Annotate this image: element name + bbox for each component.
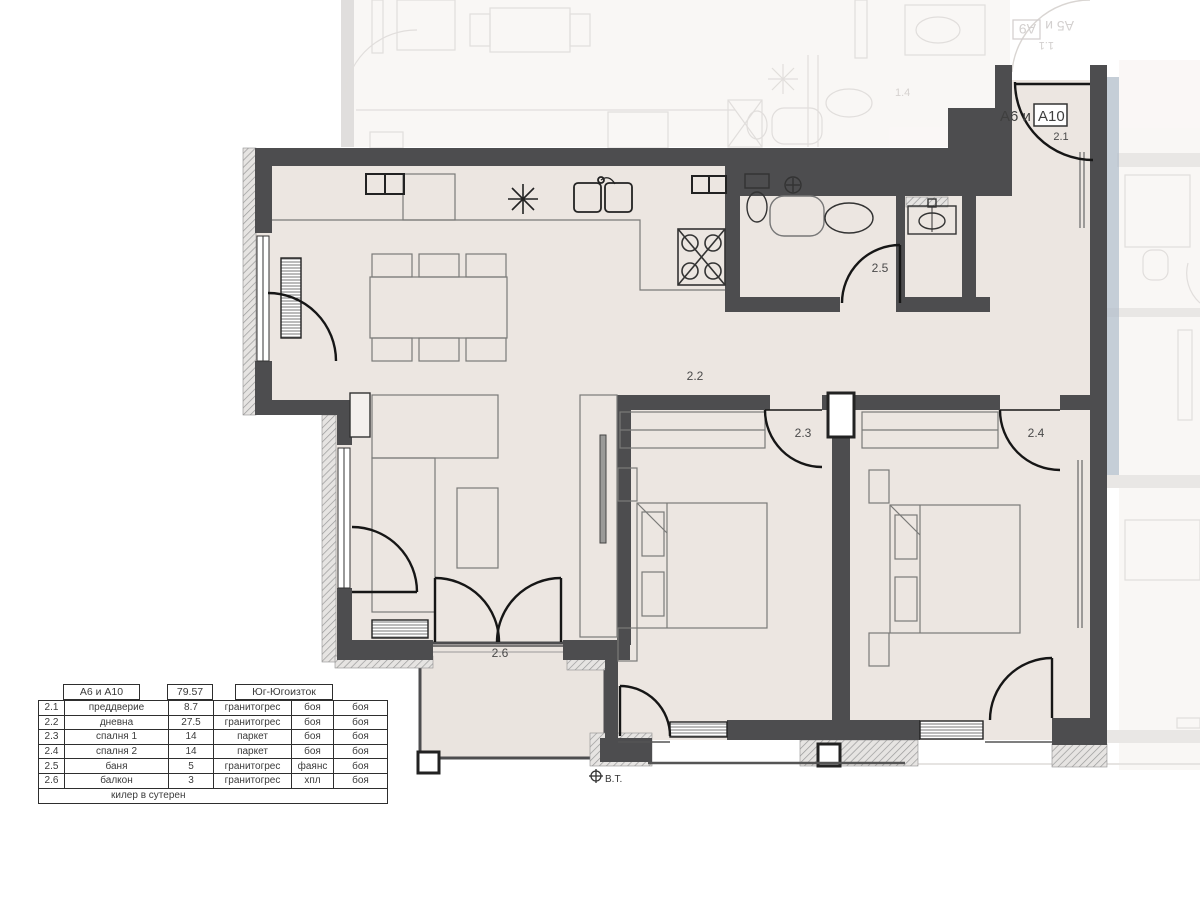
cell-num: 2.4	[39, 745, 65, 759]
survey-point-icon	[589, 769, 603, 783]
spec-header-apartment: А6 и А10	[63, 684, 140, 700]
cell-ceiling: боя	[334, 716, 387, 730]
cell-walls: фаянс	[292, 759, 334, 773]
spec-table-header: А6 и А10 79.57 Юг-Югоизток	[38, 684, 388, 700]
faded-upper-apartment	[341, 0, 1010, 148]
cell-ceiling: боя	[334, 774, 387, 788]
room-label-2-5: 2.5	[872, 261, 889, 275]
room-label-2-4: 2.4	[1028, 426, 1045, 440]
cell-name: спалня 1	[65, 730, 169, 744]
apartment-title-prefix: А6 и	[1000, 108, 1031, 125]
cell-num: 2.5	[39, 759, 65, 773]
cell-floor: гранитогрес	[214, 774, 292, 788]
upper-apartment-label-prefix: А5 и	[1045, 18, 1074, 34]
upper-neighbor-room-label: 1.4	[895, 87, 910, 99]
cell-area: 27.5	[169, 716, 214, 730]
radiator-living-bottom	[372, 620, 428, 638]
cell-area: 14	[169, 730, 214, 744]
cell-floor: паркет	[214, 745, 292, 759]
room-label-2-1: 2.1	[1053, 131, 1068, 143]
room-label-2-6: 2.6	[492, 646, 509, 660]
radiator-bedroom1	[670, 722, 727, 737]
light-symbol-icon	[508, 184, 538, 214]
apartment-title: А6 и А10	[1000, 104, 1067, 126]
room-label-2-3: 2.3	[795, 426, 812, 440]
radiator-bedroom2	[920, 721, 983, 739]
table-row: 2.3 спалня 1 14 паркет боя боя	[39, 730, 387, 745]
survey-point-label: В.Т.	[605, 774, 622, 785]
cell-floor: гранитогрес	[214, 701, 292, 715]
cell-name: преддверие	[65, 701, 169, 715]
upper-apartment-label-boxed: А9	[1019, 21, 1036, 37]
cell-num: 2.3	[39, 730, 65, 744]
cell-ceiling: боя	[334, 701, 387, 715]
cell-area: 5	[169, 759, 214, 773]
plumbing-shaft	[828, 393, 854, 437]
cell-walls: хпл	[292, 774, 334, 788]
cell-floor: гранитогрес	[214, 716, 292, 730]
washbasin-small-icon	[785, 177, 801, 193]
floor-plan-page: А5 и А9 1.1 1.4	[0, 0, 1200, 901]
spec-table-body: 2.1 преддверие 8.7 гранитогрес боя боя 2…	[38, 700, 388, 789]
tv-icon	[600, 435, 606, 543]
cell-num: 2.1	[39, 701, 65, 715]
cell-floor: гранитогрес	[214, 759, 292, 773]
table-row: 2.1 преддверие 8.7 гранитогрес боя боя	[39, 701, 387, 716]
room-label-2-2: 2.2	[687, 369, 704, 383]
room-spec-table: А6 и А10 79.57 Юг-Югоизток 2.1 преддвери…	[38, 684, 388, 804]
cell-ceiling: боя	[334, 759, 387, 773]
table-row: 2.6 балкон 3 гранитогрес хпл боя	[39, 774, 387, 789]
cell-area: 14	[169, 745, 214, 759]
upper-room-label: 1.1	[1039, 39, 1054, 51]
cell-walls: боя	[292, 701, 334, 715]
cell-area: 3	[169, 774, 214, 788]
spec-table-footer: килер в сутерен	[38, 789, 388, 804]
cell-name: дневна	[65, 716, 169, 730]
table-row: 2.4 спалня 2 14 паркет боя боя	[39, 745, 387, 760]
spec-header-exposure: Юг-Югоизток	[235, 684, 333, 700]
cell-ceiling: боя	[334, 745, 387, 759]
cell-name: баня	[65, 759, 169, 773]
cell-num: 2.6	[39, 774, 65, 788]
drain-box	[418, 752, 439, 773]
spec-header-total-area: 79.57	[167, 684, 213, 700]
cell-walls: боя	[292, 716, 334, 730]
cell-name: спалня 2	[65, 745, 169, 759]
cell-walls: боя	[292, 730, 334, 744]
table-row: 2.5 баня 5 гранитогрес фаянс боя	[39, 759, 387, 774]
cell-walls: боя	[292, 745, 334, 759]
survey-point: В.Т.	[589, 769, 622, 785]
cell-area: 8.7	[169, 701, 214, 715]
cell-floor: паркет	[214, 730, 292, 744]
cell-name: балкон	[65, 774, 169, 788]
table-row: 2.2 дневна 27.5 гранитогрес боя боя	[39, 716, 387, 731]
corridor-accent-band	[1107, 77, 1119, 475]
apartment-title-boxed: А10	[1038, 108, 1065, 125]
cell-num: 2.2	[39, 716, 65, 730]
cell-ceiling: боя	[334, 730, 387, 744]
